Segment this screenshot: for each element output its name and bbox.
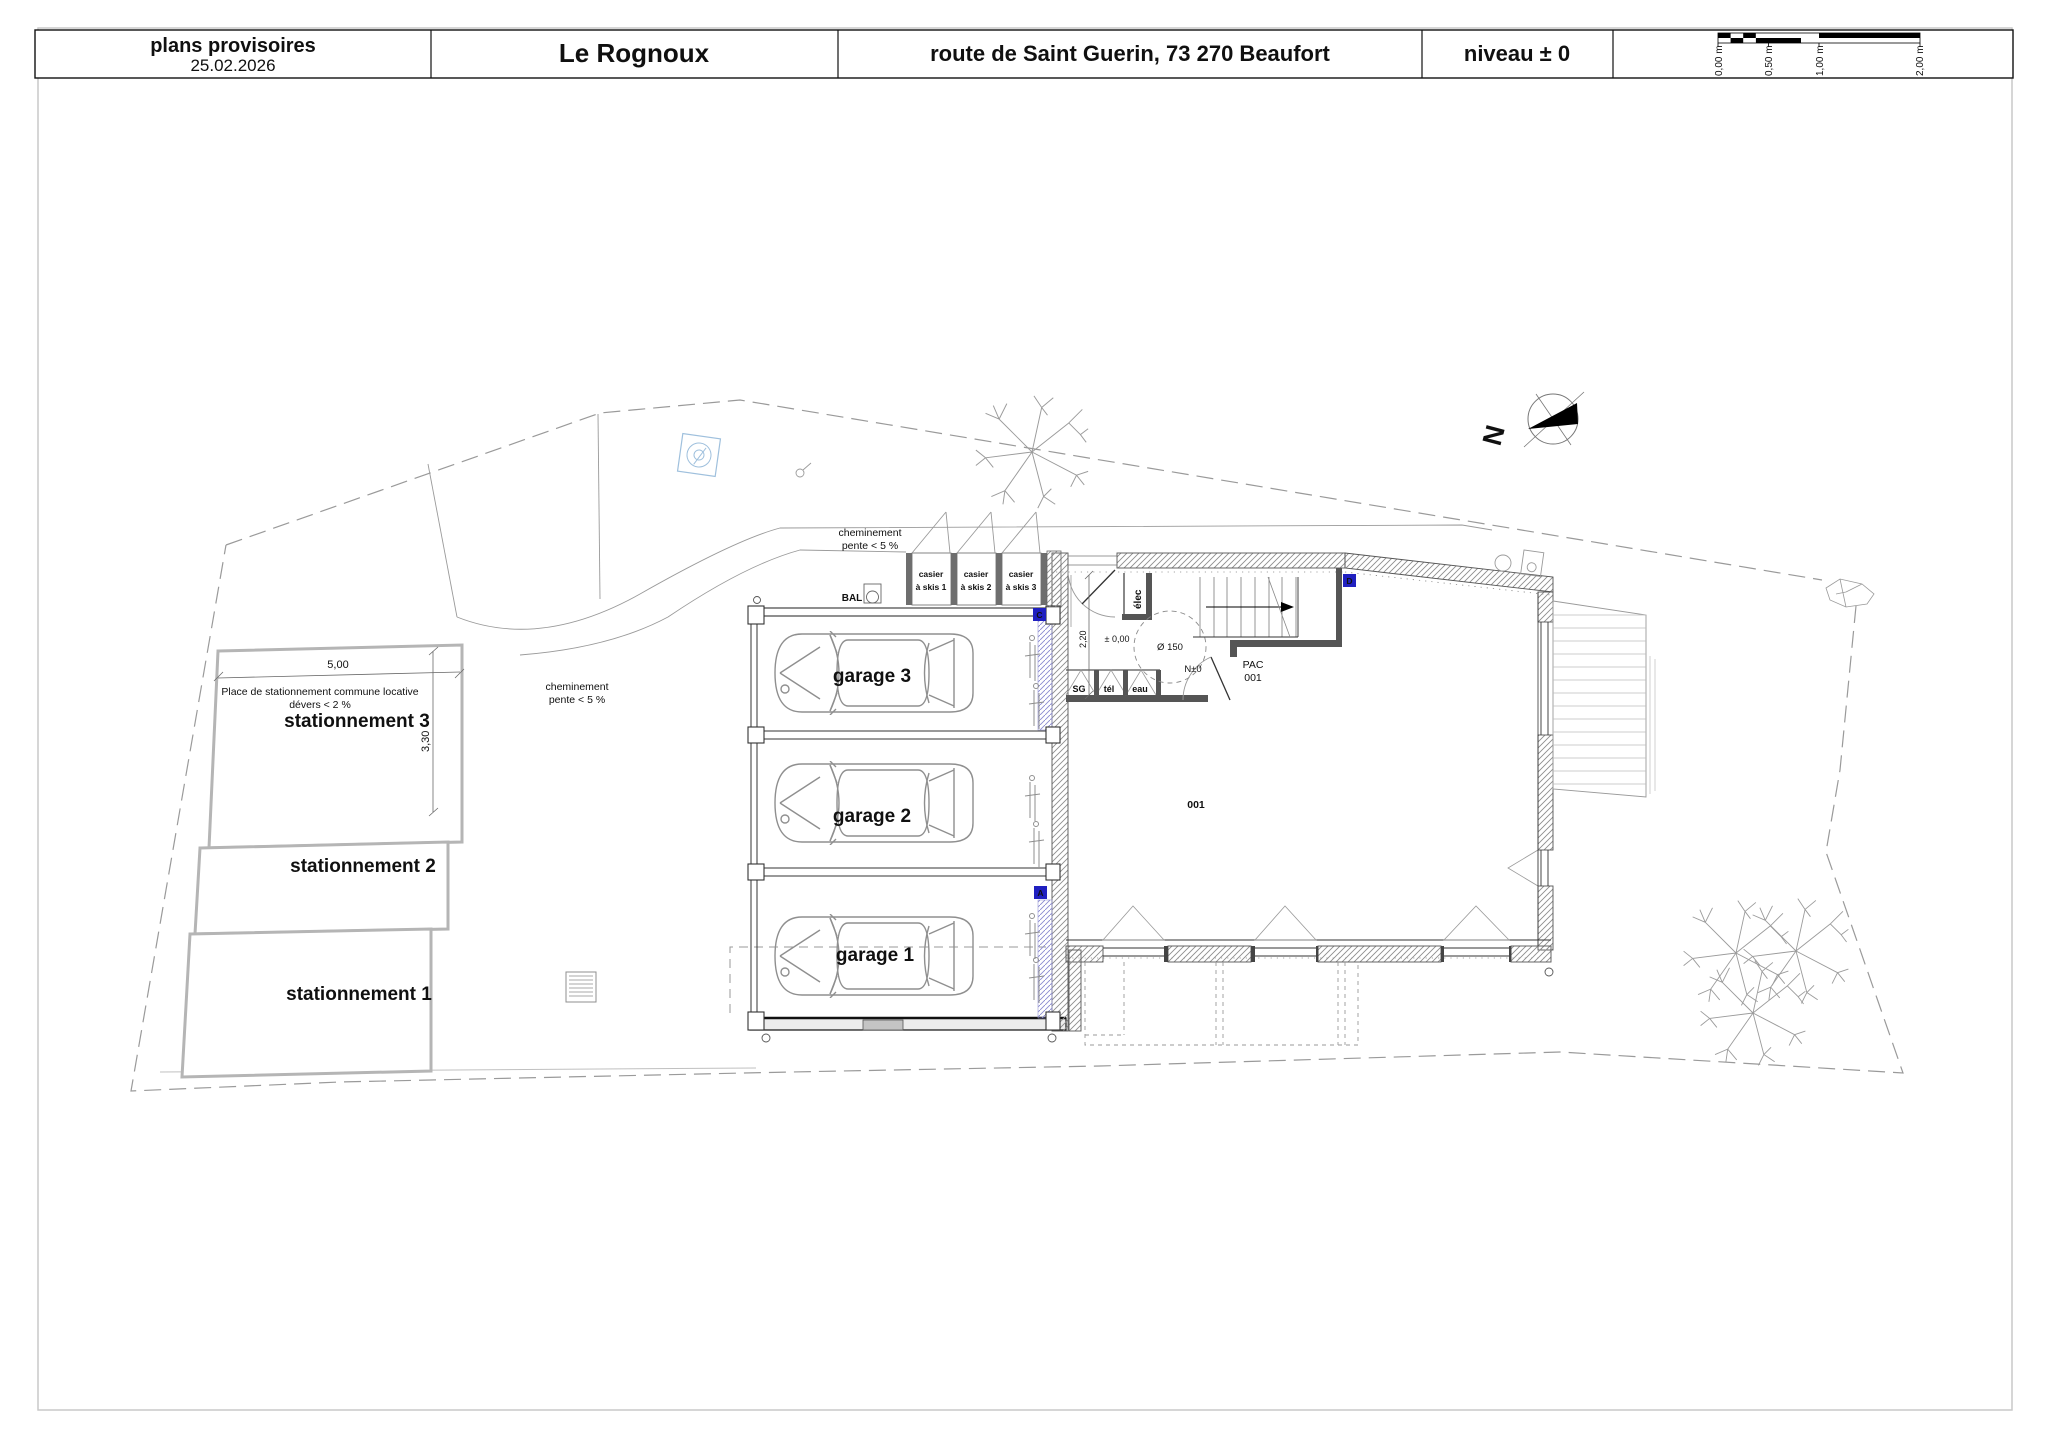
downspout-sw <box>762 1034 770 1042</box>
garage-north-wall <box>750 608 1060 616</box>
east-wall-seg2 <box>1538 735 1553 850</box>
bollard-icon <box>796 463 811 477</box>
marker-c-label: C <box>1036 610 1042 620</box>
shrub-icon <box>1495 555 1511 571</box>
balcony-projection-dashed <box>1085 962 1358 1045</box>
pac-label-2: 001 <box>1244 672 1262 684</box>
car-garage2 <box>775 761 973 845</box>
locker1-line2: à skis 1 <box>916 582 947 592</box>
insulation-garage1 <box>1038 900 1052 1018</box>
meter-sg-label: SG <box>1072 684 1085 694</box>
parking-label-3: stationnement 3 <box>284 711 430 732</box>
elec-closet: élec <box>1122 573 1152 620</box>
scale-tick-0: 0,00 m <box>1714 45 1725 76</box>
path-edge-west <box>428 464 457 617</box>
pac-label-1: PAC <box>1243 659 1264 671</box>
hall-south-wall <box>1066 695 1208 702</box>
south-windows <box>1103 906 1512 962</box>
pac-closet-return <box>1230 647 1237 657</box>
locker-1 <box>912 553 951 605</box>
tree-se-3 <box>1701 961 1806 1066</box>
walkway-note-top-1: cheminement <box>838 527 901 539</box>
locker2-line2: à skis 2 <box>961 582 992 592</box>
pac-closet-wall <box>1230 640 1339 647</box>
hall-dimension-220: 2,20 <box>1078 571 1093 699</box>
locker-door-swings <box>912 512 1040 553</box>
parking-area: 5,00 3,30 Place de stationnement commune… <box>182 645 464 1077</box>
walkway-note-mid-2: pente < 5 % <box>549 694 605 706</box>
project-address: route de Saint Guerin, 73 270 Beaufort <box>930 41 1330 66</box>
mailbox-label: BAL <box>842 593 863 604</box>
locker2-line1: casier <box>964 569 989 579</box>
level-label: niveau ± 0 <box>1464 41 1570 66</box>
garage-divider-21 <box>758 868 1052 876</box>
garage-west-wall <box>751 616 757 1018</box>
dim-330: 3,30 <box>420 731 432 752</box>
downspout-se <box>1048 1034 1056 1042</box>
garage-south-wall <box>750 1018 1066 1030</box>
ski-rack-g2a <box>1025 776 1040 822</box>
meter-eau-label: eau <box>1132 684 1148 694</box>
garage2-label: garage 2 <box>833 806 911 827</box>
locker3-line1: casier <box>1009 569 1034 579</box>
room-001-label: 001 <box>1187 799 1205 811</box>
drain-grate-icon <box>566 972 596 1002</box>
marker-d-label: D <box>1346 576 1352 586</box>
entry-threshold <box>1068 556 1117 565</box>
locker-2 <box>957 553 996 605</box>
south-facade-walls <box>1066 946 1551 1031</box>
stairs <box>1193 577 1298 637</box>
trees <box>976 396 1849 1066</box>
level-tag-label: N±0 <box>1184 664 1201 675</box>
garage1-label: garage 1 <box>836 945 915 966</box>
east-wall-seg1 <box>1538 592 1553 622</box>
walkway-note-top-2: pente < 5 % <box>842 540 898 552</box>
stair-direction-arrow <box>1281 602 1294 612</box>
north-letter: N <box>1477 422 1511 449</box>
north-arrow-pointer <box>1528 403 1578 429</box>
downspout-nw <box>754 597 761 604</box>
level-zero-label: ± 0,00 <box>1105 634 1130 644</box>
tree-se-2 <box>1744 899 1849 1004</box>
downspout-east <box>1545 968 1553 976</box>
entry-door-leaf <box>1082 570 1115 604</box>
locker-3 <box>1002 553 1041 605</box>
main-building: 001 <box>1056 553 1553 1045</box>
garage-door-sill <box>863 1020 903 1030</box>
scale-tick-1: 1,00 m <box>1815 45 1826 76</box>
parking-note-1: Place de stationnement commune locative <box>221 686 418 698</box>
dim-220-label: 2,20 <box>1078 630 1088 648</box>
facade-render-dots <box>1056 572 1551 958</box>
manhole-icon <box>678 434 721 477</box>
parking-label-1: stationnement 1 <box>286 984 432 1005</box>
mailbox-icon <box>864 584 881 603</box>
scale-tick-2: 2,00 m <box>1915 45 1926 76</box>
garage-divider-32 <box>758 731 1052 739</box>
tree-north <box>976 396 1088 508</box>
drawing-sheet: plans provisoires 25.02.2026 Le Rognoux … <box>0 0 2048 1448</box>
parking-note-2: dévers < 2 % <box>289 699 351 711</box>
deck-edge-step <box>1650 656 1655 794</box>
parking-label-2: stationnement 2 <box>290 856 436 877</box>
boundary-stone-marker <box>1826 579 1874 607</box>
sheet-status: plans provisoires <box>150 35 316 57</box>
project-title: Le Rognoux <box>559 38 710 68</box>
scale-tick-05: 0,50 m <box>1764 45 1775 76</box>
entry-hall: élec SG tél eau 2,20 <box>1066 568 1342 702</box>
hall-east-wall <box>1336 568 1342 647</box>
dim-5m: 5,00 <box>327 659 348 671</box>
east-window-opening-symbol <box>1508 850 1538 886</box>
meter-tel-label: tél <box>1104 684 1115 694</box>
locker3-line2: à skis 3 <box>1006 582 1037 592</box>
ski-rack-g2b <box>1029 822 1044 868</box>
turning-circle-label: Ø 150 <box>1157 642 1183 653</box>
marker-a-label: A <box>1037 888 1043 898</box>
deck-planks <box>1553 615 1646 784</box>
walkway-note-mid-1: cheminement <box>545 681 608 693</box>
garage-block: garage 3 garage 2 garage 1 BAL <box>730 553 1068 1042</box>
insulation-garage3 <box>1038 612 1052 730</box>
sheet-date: 25.02.2026 <box>190 56 275 75</box>
bench-icon <box>1521 550 1544 577</box>
north-arrow: N <box>1477 392 1584 449</box>
floor-plan-svg: plans provisoires 25.02.2026 Le Rognoux … <box>0 0 2048 1448</box>
detail-markers: C A D <box>1033 574 1356 899</box>
garage3-label: garage 3 <box>833 666 911 687</box>
north-facade-sloped <box>1345 553 1553 592</box>
ski-lockers: casier à skis 1 casier à skis 2 casier à… <box>906 512 1061 607</box>
north-facade <box>1117 553 1345 568</box>
locker1-line1: casier <box>919 569 944 579</box>
title-bar: plans provisoires 25.02.2026 Le Rognoux … <box>35 30 2013 78</box>
room-door-leaf <box>1211 657 1230 700</box>
locker-end-wall <box>1047 551 1061 607</box>
survey-line <box>598 414 600 599</box>
elec-label: élec <box>1133 589 1144 609</box>
